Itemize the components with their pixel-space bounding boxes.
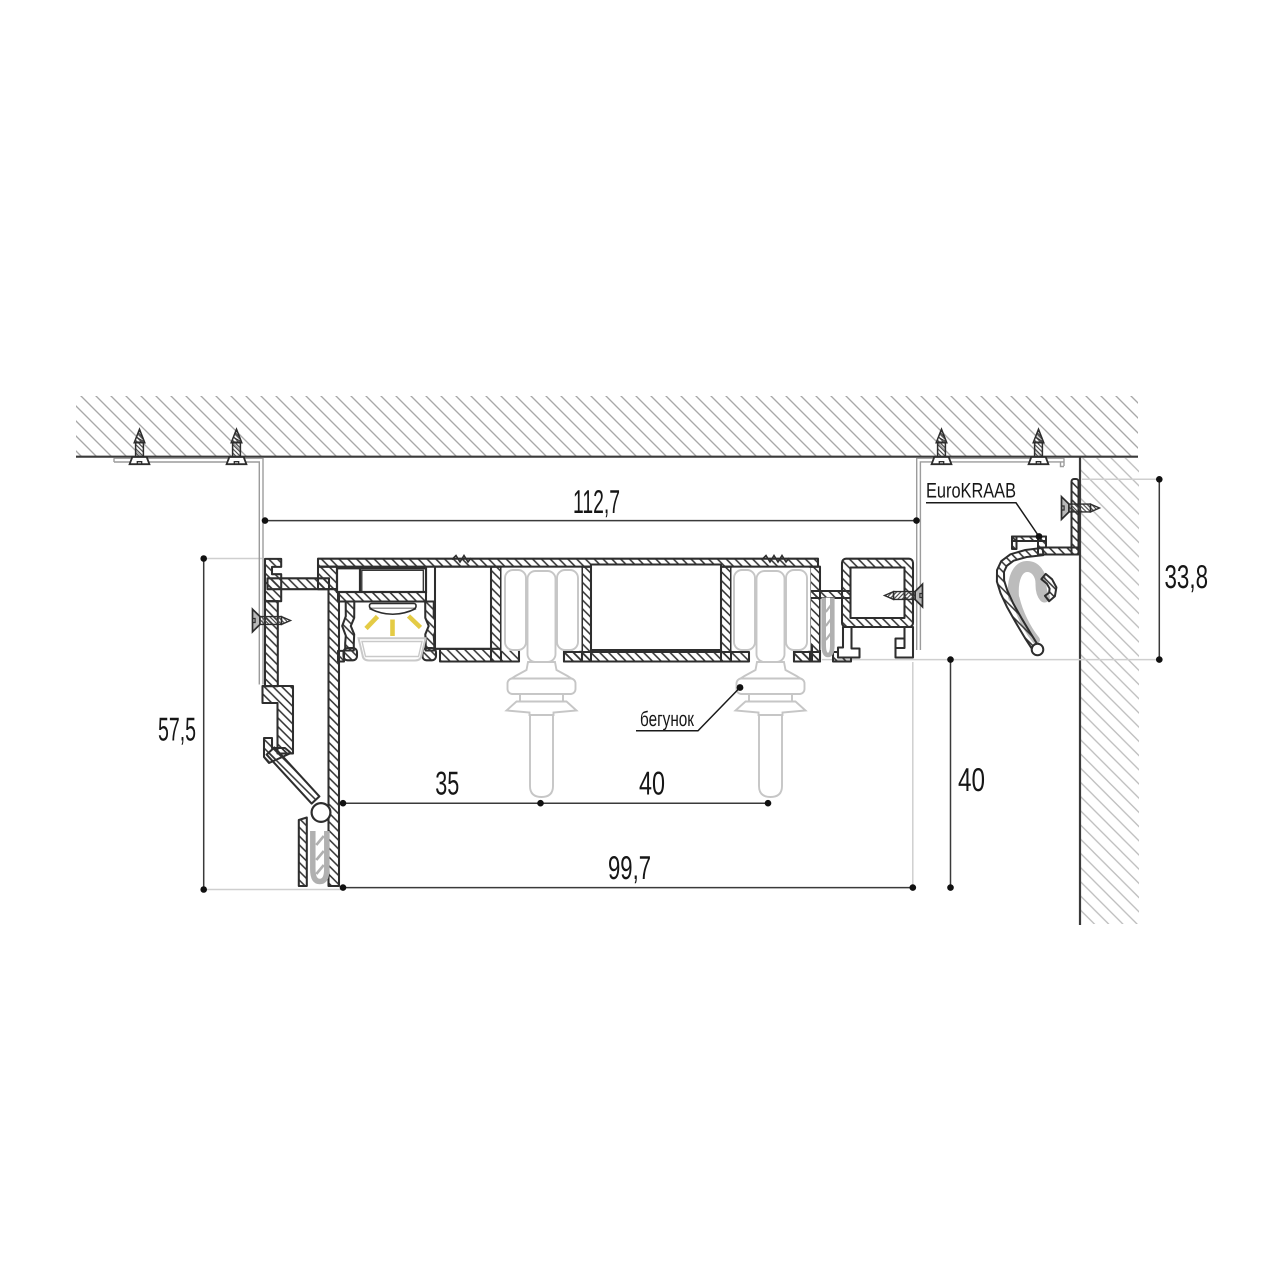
- svg-text:40: 40: [639, 764, 665, 801]
- svg-text:99,7: 99,7: [608, 849, 651, 886]
- svg-text:бегунок: бегунок: [640, 708, 695, 731]
- svg-text:33,8: 33,8: [1165, 558, 1209, 595]
- svg-text:57,5: 57,5: [158, 710, 196, 747]
- svg-text:35: 35: [435, 764, 459, 801]
- svg-text:EuroKRAAB: EuroKRAAB: [926, 480, 1016, 503]
- svg-text:112,7: 112,7: [573, 483, 620, 520]
- svg-text:40: 40: [958, 761, 985, 798]
